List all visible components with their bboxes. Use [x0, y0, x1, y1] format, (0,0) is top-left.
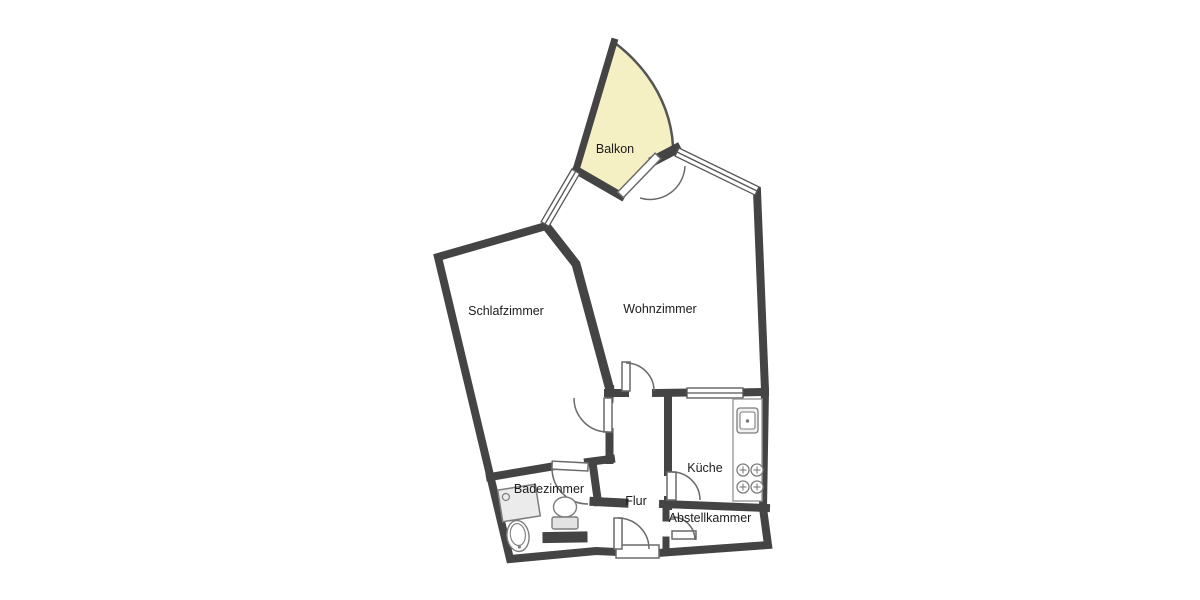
kitchen-sink	[737, 408, 758, 433]
balcony-left-window	[541, 169, 580, 226]
balcony-right-window	[675, 148, 759, 195]
door-leaf	[552, 461, 588, 471]
room-label-flur: Flur	[625, 494, 647, 508]
wall-segment	[663, 504, 766, 508]
door-leaf	[672, 531, 696, 539]
room-label-wohnzimmer: Wohnzimmer	[623, 302, 696, 316]
floor-plan: Balkon Schlafzimmer Wohnzimmer Badezimme…	[0, 0, 1200, 600]
door-leaf	[667, 472, 676, 500]
living-room-door	[622, 362, 654, 391]
door-arc	[574, 398, 608, 432]
fixtures	[498, 399, 763, 553]
kitchen-pass-window	[687, 388, 743, 398]
door-leaf	[604, 398, 612, 432]
toilet	[552, 497, 578, 529]
bedroom-door	[574, 398, 612, 432]
floor-plan-page: Balkon Schlafzimmer Wohnzimmer Badezimme…	[0, 0, 1200, 600]
wall-segment	[593, 466, 598, 502]
room-label-kueche: Küche	[687, 461, 722, 475]
wall-segment	[588, 459, 611, 462]
room-label-balkon: Balkon	[596, 142, 634, 156]
door-leaf	[614, 518, 622, 549]
room-label-schlafzimmer: Schlafzimmer	[468, 304, 544, 318]
wall-segment	[594, 502, 624, 504]
room-label-badezimmer: Badezimmer	[514, 482, 584, 496]
wall-segment	[490, 467, 552, 478]
kitchen-door	[667, 472, 700, 500]
wall-segment	[548, 537, 582, 538]
door-leaf	[622, 362, 630, 391]
entrance-door	[614, 518, 659, 558]
room-labels: Balkon Schlafzimmer Wohnzimmer Badezimme…	[468, 142, 751, 525]
room-label-abstellkammer: Abstellkammer	[669, 511, 752, 525]
wall-segment	[547, 227, 610, 390]
